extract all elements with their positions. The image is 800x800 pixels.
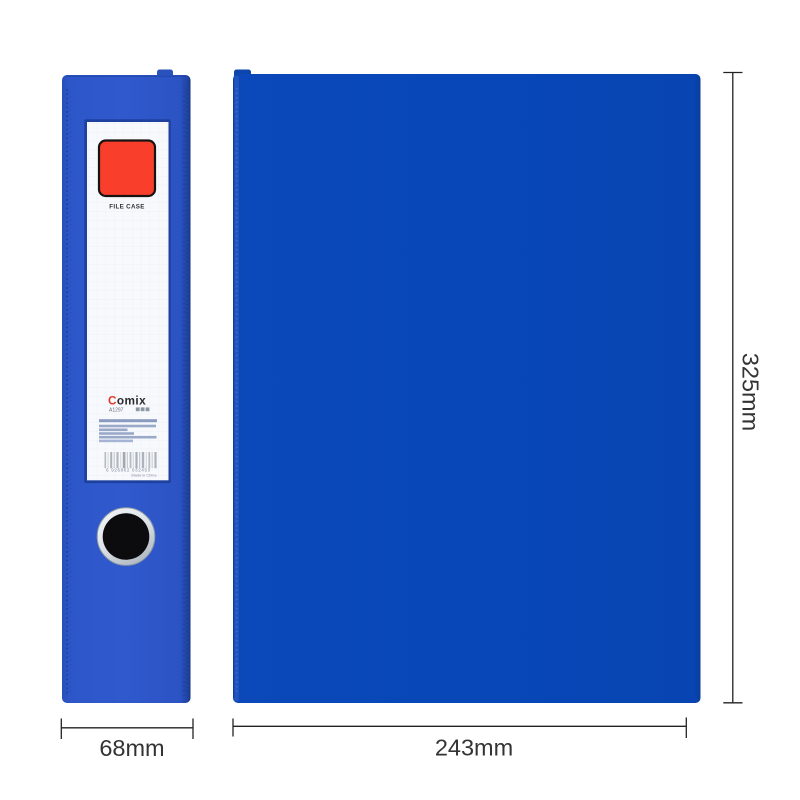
svg-text:A1297: A1297	[109, 408, 124, 414]
svg-text:325mm: 325mm	[738, 353, 764, 431]
svg-text:Made in China: Made in China	[131, 473, 157, 478]
svg-text:FILE CASE: FILE CASE	[109, 204, 144, 211]
svg-text:68mm: 68mm	[99, 735, 164, 761]
svg-text:243mm: 243mm	[435, 735, 513, 761]
svg-text:Comix: Comix	[108, 394, 146, 408]
